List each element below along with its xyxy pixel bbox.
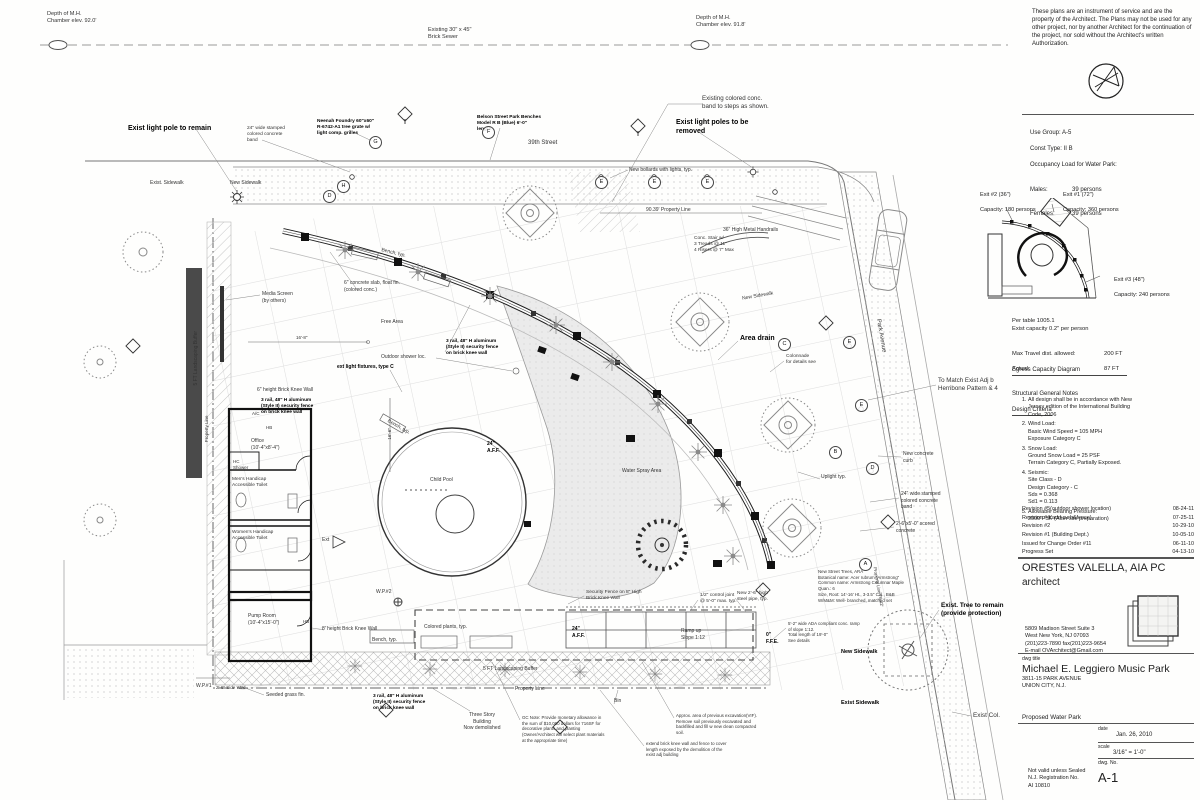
divider [1098, 758, 1194, 759]
site-plan-sheet: Depth of M.H. Chamber elev. 92.0'Existin… [0, 0, 1200, 800]
architect-name: ORESTES VALELLA, AIA PC [1022, 561, 1165, 576]
scored-conc-note: 2'-6"x5'-0" scored concrete [896, 521, 935, 534]
disclaimer-note: These plans are an instrument of service… [1032, 8, 1194, 48]
seal-note: Not valid unless Sealed N.J. Registratio… [1028, 768, 1085, 790]
aff-ramp-label: 24" A.F.F. [572, 626, 585, 639]
park-avenue-label: Park Avenue [872, 313, 888, 360]
plan-marker-d: D [866, 462, 879, 475]
new-bollards-note: New bollards with lights, typ. [629, 167, 692, 174]
revision-table: Revision #5(outdoor shower location)08-2… [1022, 505, 1194, 557]
north-arrow-icon [1085, 60, 1127, 102]
use-group: Use Group: A-5 [1030, 129, 1117, 137]
aff-pool-label: 24" A.F.F. [487, 441, 500, 454]
dwg-no-value: A-1 [1098, 769, 1118, 787]
steel-pipe-note: New 2'-6" high steel pipe, typ. [737, 591, 768, 603]
new-sidewalk-top: New Sidewalk [230, 180, 261, 187]
colored-conc-band-steps: Existing colored conc. band to steps as … [702, 95, 769, 111]
excavation-note: Approx. area of previous excavation(VIF)… [676, 713, 757, 736]
bench-typ-bottom: Bench, typ. [372, 637, 397, 644]
neenah-foundry-note: Neenah Foundry 60"x60" R-6742-A1 tree gr… [317, 119, 374, 138]
to-match-note: To Match Exist Adj b Herribone Pattern &… [938, 377, 998, 393]
extend-wall-note: extend brick knee wall and fence to cove… [646, 741, 727, 758]
new-sidewalk-right: New Sidewalk [742, 290, 774, 302]
dim-16-8: 16'-8" [296, 335, 307, 341]
divider [1018, 557, 1194, 559]
revision-row: Issued for Change Order #1106-11-10 [1022, 540, 1194, 549]
knee-wall-8ft: 8' height Brick Knee Wall [322, 626, 377, 633]
outdoor-shower-note: Outdoor shower loc. [381, 354, 426, 361]
divider [1098, 742, 1194, 743]
exist-sidewalk-top: Exist. Sidewalk [150, 180, 184, 187]
mens-toilet-label: Men's Handicap Accessible Toilet [232, 477, 267, 489]
travel-distance: Max Travel dist. allowed:200 FT Actual:8… [1012, 343, 1162, 382]
knee-wall-6in: 6" height Brick Knee Wall [257, 387, 313, 394]
project-address: 3811-15 PARK AVENUE UNION CITY, N.J. [1022, 676, 1081, 691]
gc-note: GC Note: Provide monetary allowance in t… [522, 715, 604, 744]
exist-col-label: Exist Col. [973, 712, 1000, 720]
property-line-top: 90.39' Property Line [646, 207, 691, 214]
plan-marker-c: C [778, 338, 791, 351]
architect-role: architect [1022, 576, 1060, 590]
plan-marker-e: E [595, 176, 608, 189]
landscape-buffer-bottom: 5 FT Landscaping Buffer [483, 666, 538, 673]
sheet-title: Proposed Water Park [1022, 714, 1081, 722]
new-sidewalk-bottom: New Sidewalk [841, 649, 877, 656]
stamped-band-right: 24" wide stamped colored concrete band [901, 491, 941, 511]
seeded-grass-note: Seeded grass fin. [266, 692, 305, 699]
conc-slab-note: 6" concrete slab, float fin. (colored co… [344, 280, 400, 293]
child-pool-label: Child Pool [430, 477, 453, 484]
plan-marker-h: H [337, 180, 350, 193]
security-fence-mid: 3 rail, 48" H aluminum (Style II) securi… [446, 339, 498, 358]
security-fence-office: 3 rail, 48" H aluminum (Style II) securi… [261, 398, 313, 417]
divider [1018, 653, 1194, 654]
depth-mh-right: Depth of M.H. Chamber elev. 91.8' [696, 15, 745, 30]
revision-row: Revision #5(outdoor shower location)08-2… [1022, 505, 1194, 514]
revision-row: Revision #1 (Building Dept.)10-05-10 [1022, 531, 1194, 540]
revision-row: Revision #210-29-10 [1022, 522, 1194, 531]
architect-logo [1126, 594, 1182, 650]
exist-light-poles-removed: Exist light poles to be removed [676, 118, 748, 136]
landscape-buffer-left: 5 FT Landscaping Buffer [193, 313, 200, 403]
property-line-left: Property Line [204, 399, 210, 459]
new-street-trees-note: New Street Trees, ARA Botanical name: Ac… [818, 569, 904, 603]
plan-annotations: Depth of M.H. Chamber elev. 92.0'Existin… [0, 0, 1015, 800]
water-spray-label: Water Spray Area [622, 468, 661, 475]
architect-address: 5809 Madison Street Suite 3 West New Yor… [1025, 626, 1106, 656]
exist-tree-remain: Exist. Tree to remain (provide protectio… [941, 602, 1004, 619]
occupancy-heading: Occupancy Load for Water Park: [1030, 161, 1117, 169]
ada-ramp-note: 5'-2" wide ADA compliant conc. ramp of s… [788, 621, 860, 644]
plan-marker-e: E [701, 176, 714, 189]
side-yard-dim: 2'-6" Side Yard [216, 685, 246, 691]
wp2-label: W.P.#2 [376, 589, 391, 596]
wall-light-fixtures-note: ext light fixtures, type C [337, 364, 394, 371]
note-item: Snow Load: Ground Snow Load = 25 PSF Ter… [1028, 446, 1200, 468]
free-area-label: Free Area [381, 319, 403, 326]
note-item: Wind Load: Basic Wind Speed = 105 MPH Ex… [1028, 421, 1200, 443]
scale-value: 3/16" = 1'-0" [1113, 749, 1146, 757]
revision-row: Revision #4(add curb&fence)07-25-11 [1022, 514, 1194, 523]
revision-row: Progress Set04-13-10 [1022, 548, 1194, 557]
plan-marker-e: E [855, 399, 868, 412]
divider [1022, 114, 1194, 115]
bin-label: Bin [614, 698, 621, 705]
plan-marker-a: A [859, 558, 872, 571]
ac-label: A/C [252, 411, 260, 417]
conc-stair-note: Conc. Stair w/ 3 Treads @ 11" 4 Risers @… [694, 236, 734, 255]
metal-handrails-note: 36" High Metal Handrails [723, 227, 778, 234]
security-fence-8-high: Security Fence on 8" High Brick Knee Wal… [586, 590, 642, 602]
media-screen-note: Media Screen (by others) [262, 291, 293, 304]
bench-typ-arc: Bench, typ. [381, 247, 407, 259]
note-item: Seismic: Site Class - D Design Category … [1028, 470, 1200, 507]
security-fence-bottom: 3 rail, 48" H aluminum (Style II) securi… [373, 694, 425, 713]
egress-diagram-title: Egress Capacity Diagram [1012, 366, 1127, 376]
project-name: Michael E. Leggiero Music Park [1022, 662, 1170, 676]
exist-sidewalk-bottom: Exist Sidewalk [841, 700, 879, 707]
per-table-note: Per table 1005.1 Exist capacity 0.2" per… [1012, 318, 1089, 334]
plan-marker-e: E [648, 176, 661, 189]
plan-marker-b: B [829, 446, 842, 459]
hb-office: HB [266, 425, 272, 431]
street-39-label: 39th Street [528, 140, 557, 148]
control-joint-note: 1/2" control joint @ 5'-0" max. typ. [700, 593, 737, 605]
ext-label: Ext [322, 537, 329, 544]
const-type: Const Type: II B [1030, 145, 1117, 153]
dwg-no-label: dwg. No. [1098, 760, 1118, 767]
exist-light-pole-remain: Exist light pole to remain [128, 124, 211, 133]
area-drain-label: Area drain [740, 334, 775, 343]
note-item: All design shall be in accordance with N… [1028, 397, 1200, 419]
colonnade-note: Colonnade for details see [786, 354, 816, 366]
wp1-label: W.P.#1 [196, 683, 211, 690]
pump-room-label: Pump Room (10'-4"x15'-0") [248, 613, 279, 626]
ramp-up-label: Ramp up Slope 1:12 [681, 628, 705, 641]
divider [1018, 723, 1194, 724]
depth-mh-left: Depth of M.H. Chamber elev. 92.0' [47, 11, 96, 26]
exit3-note: Exit #3 (48") Capacity: 240 persons [1114, 269, 1170, 307]
new-curb-note: New concrete curb [903, 451, 934, 464]
stamped-band-top: 24" wide stamped colored concrete band [247, 126, 285, 145]
brick-sewer-label: Existing 30" x 45" Brick Sewer [428, 27, 471, 42]
plan-marker-f: F [482, 126, 495, 139]
plan-marker-d: D [323, 190, 336, 203]
scale-label: scale [1098, 744, 1110, 751]
date-label: date [1098, 726, 1108, 733]
colored-plants-note: Colored plants, typ. [424, 624, 467, 631]
uplight-label: Uplight typ. [821, 474, 846, 481]
womens-toilet-label: Women's Handicap Accessible Toilet [232, 530, 273, 542]
plan-marker-e: E [843, 336, 856, 349]
three-story-note: Three Story Building Now demolished [461, 712, 503, 732]
hc-shower-label: HC Shower [233, 459, 248, 471]
property-line-bottom: Property Line [515, 686, 545, 693]
date-value: Jan. 26, 2010 [1116, 731, 1152, 739]
office-label: Office (10'-4"x8'-4") [251, 438, 280, 451]
egress-capacity-diagram [982, 198, 1110, 316]
ffe-label: 0" F.F.E. [766, 632, 779, 645]
plan-marker-g: G [369, 136, 382, 149]
hb-pump: HB [303, 619, 309, 625]
